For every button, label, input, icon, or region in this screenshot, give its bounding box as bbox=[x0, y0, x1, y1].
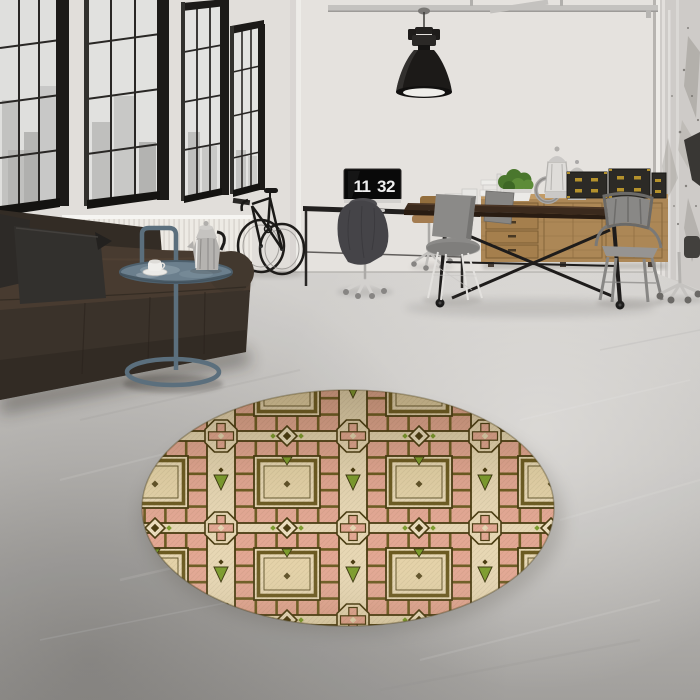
loft-room-photo: 11 32 bbox=[0, 0, 700, 700]
scene-svg: 11 32 bbox=[0, 0, 700, 700]
vignette bbox=[0, 0, 700, 700]
